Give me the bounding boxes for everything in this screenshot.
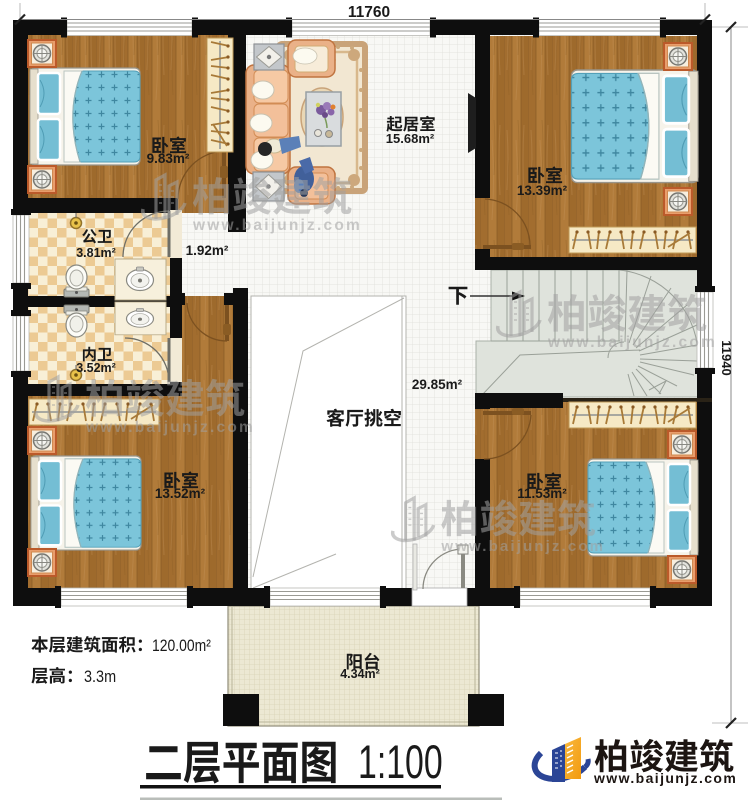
svg-text:www.baijunjz.com: www.baijunjz.com	[85, 419, 255, 436]
svg-text:29.85m²: 29.85m²	[412, 377, 463, 392]
svg-text:120.00m²: 120.00m²	[152, 637, 211, 656]
svg-text:15.68m²: 15.68m²	[386, 131, 435, 146]
svg-text:www.baijunjz.com: www.baijunjz.com	[547, 334, 717, 351]
svg-text:11760: 11760	[348, 4, 390, 21]
svg-text:3.52m²: 3.52m²	[76, 361, 116, 375]
svg-text:1.92m²: 1.92m²	[186, 243, 229, 258]
svg-text:11940: 11940	[719, 340, 734, 375]
svg-text:13.39m²: 13.39m²	[517, 183, 568, 198]
svg-text:www.baijunjz.com: www.baijunjz.com	[192, 217, 362, 234]
svg-text:3.3m: 3.3m	[84, 668, 116, 686]
svg-text:www.baijunjz.com: www.baijunjz.com	[593, 770, 737, 786]
svg-text:9.83m²: 9.83m²	[147, 151, 190, 166]
svg-text:1:100: 1:100	[358, 736, 443, 789]
svg-text:4.34m²: 4.34m²	[340, 667, 380, 681]
svg-text:www.baijunjz.com: www.baijunjz.com	[440, 538, 605, 555]
svg-text:13.52m²: 13.52m²	[155, 486, 206, 501]
svg-text:3.81m²: 3.81m²	[76, 246, 116, 260]
svg-text:11.53m²: 11.53m²	[517, 486, 567, 501]
